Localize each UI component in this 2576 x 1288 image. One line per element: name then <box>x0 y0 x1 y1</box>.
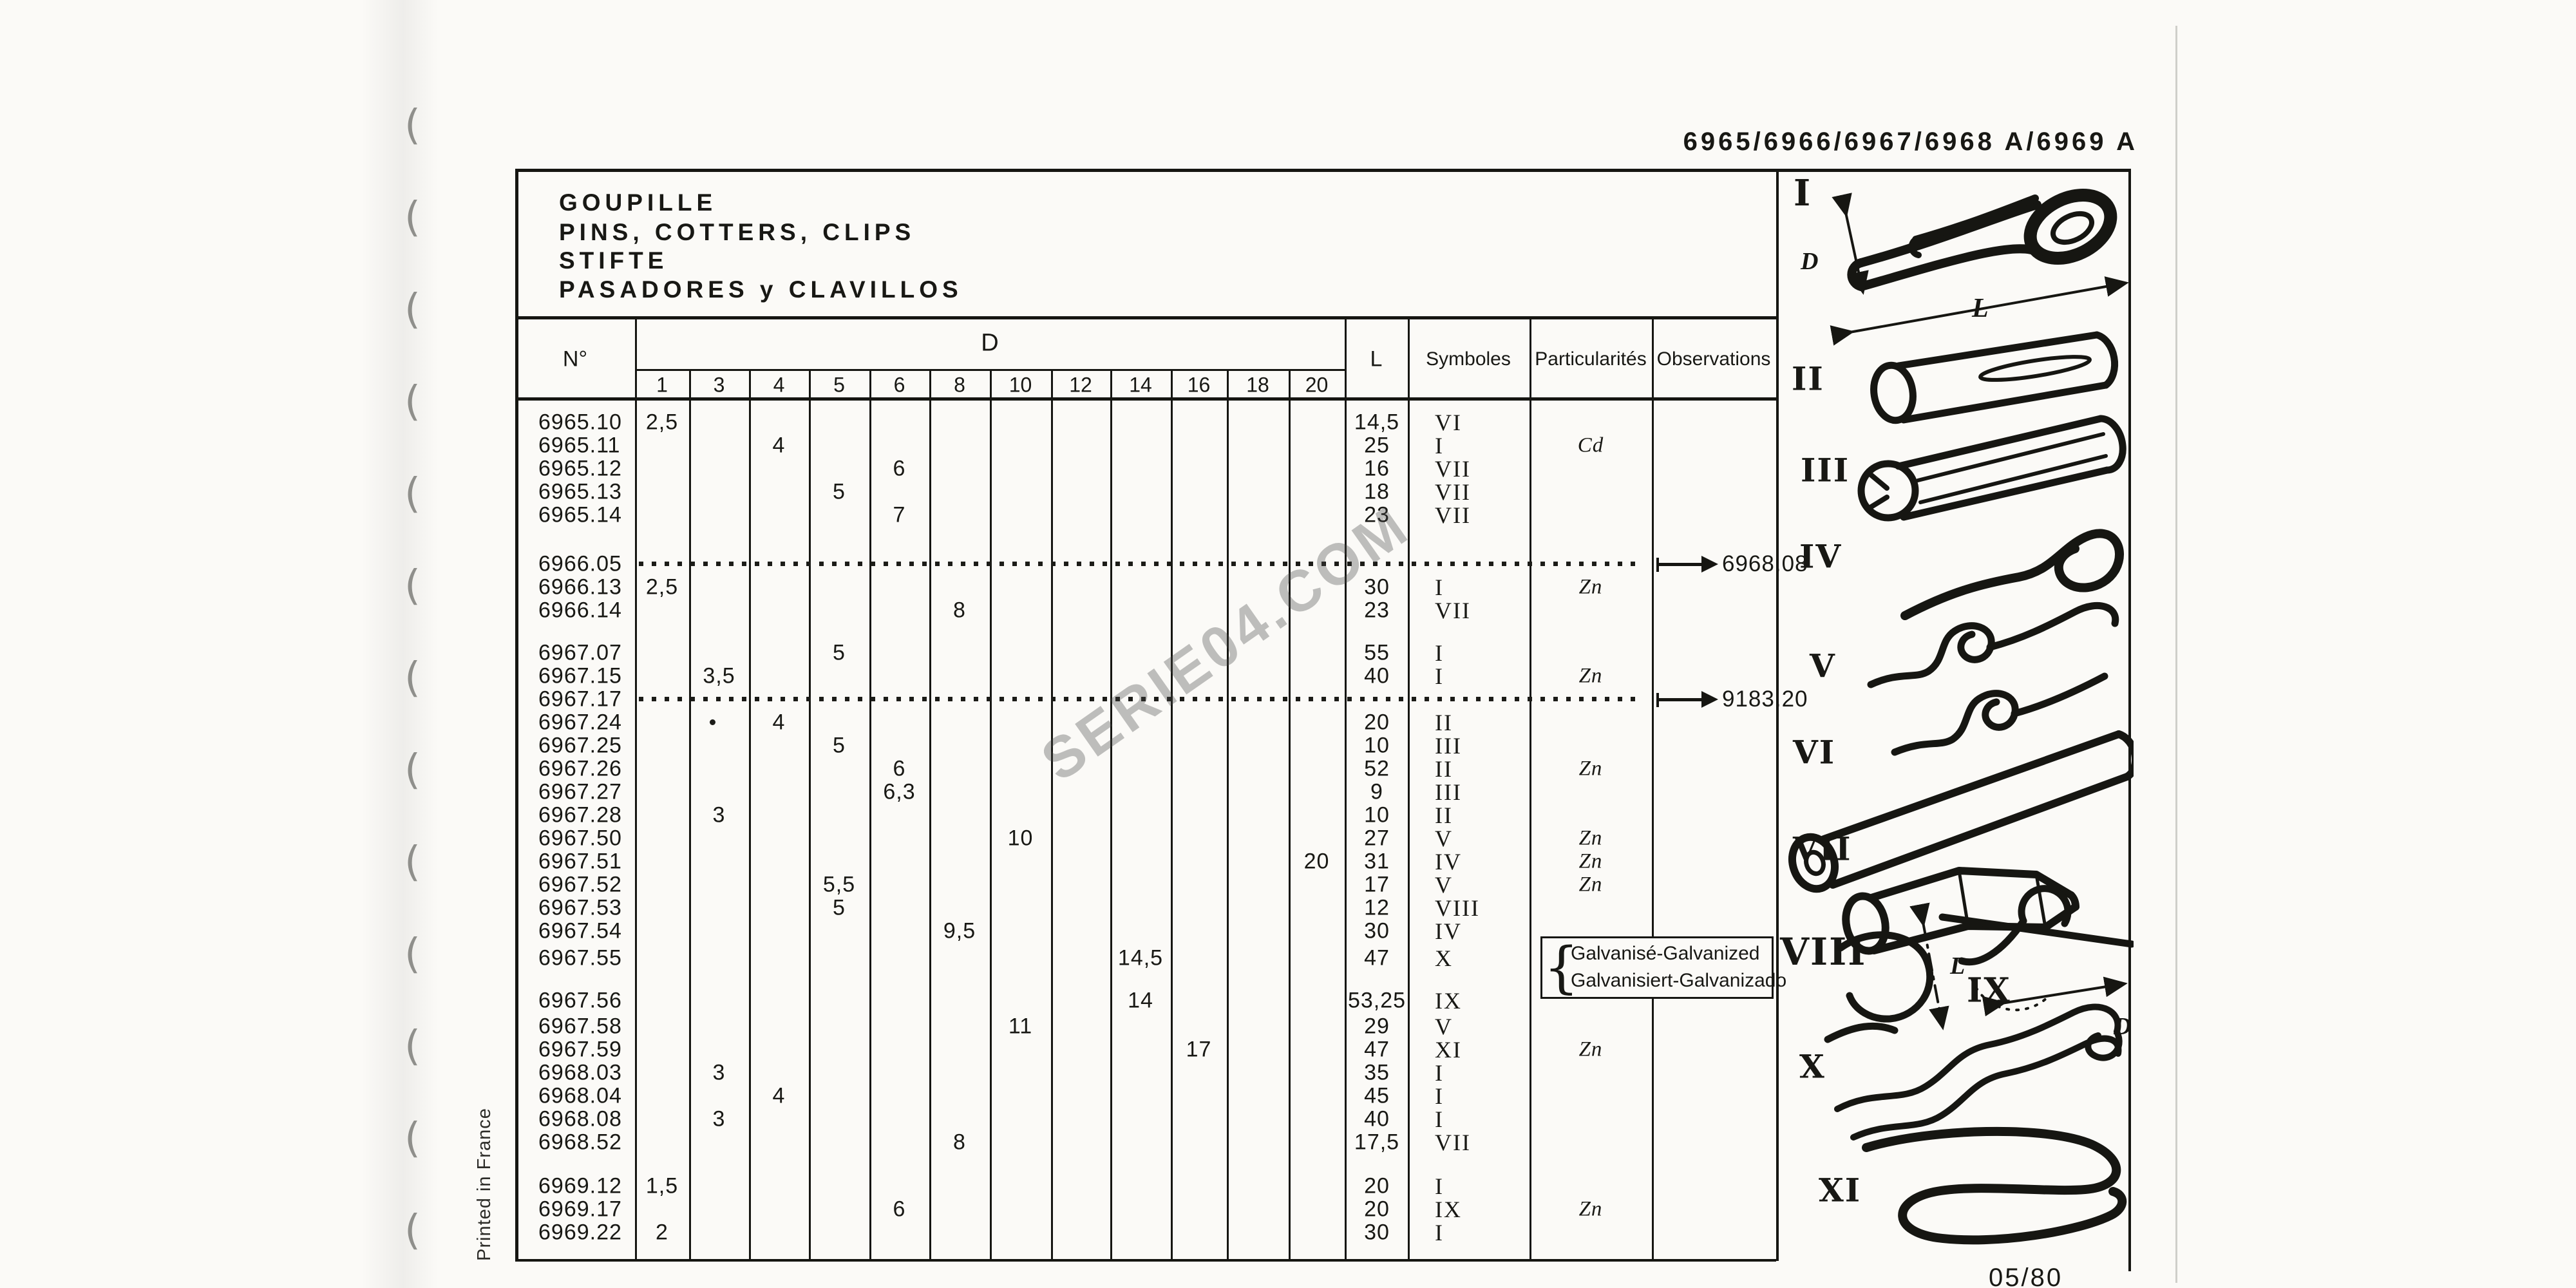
d-value-cell: 17 <box>1154 1037 1244 1062</box>
d-value-cell: 10 <box>976 826 1066 851</box>
grid-hline <box>515 397 1776 401</box>
catalog-page-scan: ((((((((((((( 6965/6966/6967/6968 A/6969… <box>0 0 2576 1288</box>
l-value-cell: 40 <box>1325 1106 1428 1132</box>
figure-III-grooved-pin-drawing <box>1861 419 2123 518</box>
part-number-cell: 6967.50 <box>538 826 622 851</box>
printed-in-france-label: Printed in France <box>474 1108 495 1261</box>
part-number-cell: 6965.13 <box>538 480 622 505</box>
symbole-cell: VII <box>1435 1129 1471 1156</box>
part-number-cell: 6965.12 <box>538 457 622 482</box>
grid-vline <box>1529 317 1531 1261</box>
particularite-cell: Zn <box>1542 827 1639 851</box>
part-number-cell: 6967.52 <box>538 873 622 898</box>
part-number-cell: 6967.27 <box>538 780 622 805</box>
d-value-cell: 11 <box>976 1014 1066 1039</box>
binding-hole-icon: ( <box>404 925 430 983</box>
l-value-cell: 20 <box>1325 710 1428 735</box>
print-date-code: 05/80 <box>1989 1264 2063 1288</box>
d-value-cell: 5,5 <box>794 873 884 898</box>
page-reference-code: 6965/6966/6967/6968 A/6969 A <box>1649 128 2138 156</box>
grid-hline <box>635 369 1345 371</box>
page-right-edge <box>2175 26 2177 1283</box>
part-number-cell: 6967.51 <box>538 849 622 875</box>
d-size-label: 8 <box>954 374 965 397</box>
l-value-cell: 12 <box>1325 896 1428 921</box>
grid-vline <box>990 370 992 1261</box>
symbole-cell: IV <box>1435 918 1462 945</box>
dotted-leader <box>639 562 1639 566</box>
l-value-cell: 55 <box>1325 641 1428 666</box>
particularite-cell: Zn <box>1542 575 1639 599</box>
l-value-cell: 52 <box>1325 757 1428 782</box>
title-english: PINS, COTTERS, CLIPS <box>559 219 915 246</box>
part-number-cell: 6967.28 <box>538 803 622 828</box>
part-number-cell: 6969.22 <box>538 1220 622 1245</box>
l-value-cell: 20 <box>1325 1197 1428 1222</box>
d-value-cell: 3 <box>674 1060 764 1085</box>
d-value-cell: 5 <box>794 480 884 505</box>
col-header-symboles: Symboles <box>1426 348 1511 370</box>
stray-dot-mark <box>710 719 715 725</box>
d-value-cell: 9,5 <box>914 919 1005 944</box>
symbole-cell: X <box>1435 945 1453 972</box>
l-value-cell: 40 <box>1325 664 1428 689</box>
symbole-cell: IX <box>1435 987 1462 1014</box>
d-value-cell: 4 <box>734 433 824 459</box>
d-value-cell: 6 <box>855 1197 945 1222</box>
particularite-cell: Zn <box>1542 873 1639 897</box>
l-value-cell: 14,5 <box>1325 410 1428 435</box>
particularite-cell: Zn <box>1542 850 1639 874</box>
part-number-cell: 6966.14 <box>538 598 622 623</box>
part-number-cell: 6967.59 <box>538 1037 622 1062</box>
d-size-label: 14 <box>1129 374 1152 397</box>
grid-hline <box>515 1259 1776 1262</box>
title-french: GOUPILLE <box>559 189 717 216</box>
figure-V-double-wave-clip-drawing <box>1871 605 2116 752</box>
l-value-cell: 35 <box>1325 1060 1428 1085</box>
part-number-cell: 6967.17 <box>538 687 622 712</box>
figure-XI-large-wire-clip-drawing <box>1866 1132 2122 1240</box>
l-value-cell: 9 <box>1325 780 1428 805</box>
d-size-label: 20 <box>1305 374 1329 397</box>
grid-vline <box>515 169 518 1261</box>
l-value-cell: 53,25 <box>1325 989 1428 1014</box>
d-value-cell: 2 <box>617 1220 707 1245</box>
d-value-cell: 14 <box>1095 989 1186 1014</box>
part-number-cell: 6965.11 <box>538 433 620 459</box>
figure-II-slotted-pin-drawing <box>1870 335 2115 423</box>
pin-type-illustrations: D L <box>1776 169 2134 1270</box>
col-header-particularites: Particularités <box>1535 348 1646 370</box>
binding-hole-icon: ( <box>404 189 430 247</box>
part-number-cell: 6967.55 <box>538 945 622 971</box>
d-value-cell: 3,5 <box>674 664 764 689</box>
arrow-line <box>1656 563 1703 566</box>
galvanized-note-line2: Galvanisiert-Galvanizado <box>1571 970 1786 992</box>
col-header-l: L <box>1370 347 1383 372</box>
binding-hole-icon: ( <box>404 1110 430 1168</box>
l-value-cell: 20 <box>1325 1174 1428 1199</box>
grid-vline <box>1051 370 1053 1261</box>
d-value-cell: 6,3 <box>855 780 945 805</box>
l-value-cell: 30 <box>1325 919 1428 944</box>
binding-hole-icon: ( <box>404 741 430 799</box>
particularite-cell: Zn <box>1542 1198 1639 1222</box>
d-value-cell: 5 <box>794 641 884 666</box>
d-size-label: 18 <box>1246 374 1269 397</box>
col-header-no: N° <box>563 347 587 372</box>
d-size-label: 1 <box>656 374 668 397</box>
l-value-cell: 17 <box>1325 873 1428 898</box>
l-value-cell: 45 <box>1325 1083 1428 1108</box>
figure-VII-barrel-pin-drawing <box>1841 871 2076 954</box>
part-number-cell: 6968.03 <box>538 1060 622 1085</box>
symbole-cell: VII <box>1435 502 1471 529</box>
d-value-cell: 8 <box>914 598 1005 623</box>
galvanized-note: {Galvanisé-GalvanizedGalvanisiert-Galvan… <box>1540 936 1774 999</box>
l-value-cell: 47 <box>1325 1037 1428 1062</box>
l-value-cell: 29 <box>1325 1014 1428 1039</box>
part-number-cell: 6967.26 <box>538 757 622 782</box>
part-number-cell: 6967.25 <box>538 734 622 759</box>
binding-hole-icon: ( <box>404 373 430 431</box>
part-number-cell: 6969.12 <box>538 1174 622 1199</box>
part-number-cell: 6969.17 <box>538 1197 622 1222</box>
part-number-cell: 6965.14 <box>538 503 622 528</box>
part-number-cell: 6967.15 <box>538 664 622 689</box>
part-number-cell: 6967.24 <box>538 710 622 735</box>
d-size-label: 3 <box>714 374 725 397</box>
d-size-label: 10 <box>1009 374 1032 397</box>
l-value-cell: 10 <box>1325 803 1428 828</box>
l-value-cell: 30 <box>1325 1220 1428 1245</box>
title-german: STIFTE <box>559 247 668 274</box>
col-header-d: D <box>981 330 998 357</box>
grid-vline <box>1289 370 1291 1261</box>
d-value-cell: 3 <box>674 1106 764 1132</box>
binding-hole-icon: ( <box>404 557 430 615</box>
dim-label-l: L <box>1971 294 1989 323</box>
d-value-cell: 3 <box>674 803 764 828</box>
binding-hole-icon: ( <box>404 1202 430 1260</box>
particularite-cell: Cd <box>1542 434 1639 458</box>
galvanized-note-line1: Galvanisé-Galvanized <box>1571 943 1759 965</box>
l-value-cell: 17,5 <box>1325 1130 1428 1155</box>
col-header-observations: Observations <box>1657 348 1771 370</box>
binding-hole-icon: ( <box>404 649 430 707</box>
arrow-right-icon <box>1701 556 1718 573</box>
figure-VIII-c-clip-drawing: L <box>1828 922 1965 1039</box>
grid-vline <box>1110 370 1112 1261</box>
d-value-cell: 7 <box>855 503 945 528</box>
particularite-cell: Zn <box>1542 1037 1639 1061</box>
particularite-cell: Zn <box>1542 665 1639 688</box>
l-value-cell: 47 <box>1325 945 1428 971</box>
d-size-label: 5 <box>833 374 845 397</box>
d-value-cell: 2,5 <box>617 410 707 435</box>
d-value-cell: 4 <box>734 1083 824 1108</box>
d-value-cell: 5 <box>794 896 884 921</box>
dim-label-d: D <box>1800 248 1818 275</box>
d-value-cell: 5 <box>794 734 884 759</box>
arrow-line <box>1656 698 1703 701</box>
d-value-cell: 8 <box>914 1130 1005 1155</box>
part-number-cell: 6967.58 <box>538 1014 622 1039</box>
dim-label-l-viii: L <box>1949 952 1965 980</box>
grid-vline <box>1171 370 1173 1261</box>
d-value-cell: 6 <box>855 757 945 782</box>
symbole-cell: I <box>1435 663 1444 690</box>
grid-vline <box>1227 370 1229 1261</box>
d-value-cell: 6 <box>855 457 945 482</box>
part-number-cell: 6967.56 <box>538 989 622 1014</box>
figure-IX-r-clip-drawing: D <box>1942 889 2132 1040</box>
d-value-cell: 2,5 <box>617 574 707 600</box>
symbole-cell: VII <box>1435 597 1471 624</box>
binding-hole-icon: ( <box>404 281 430 339</box>
d-size-label: 4 <box>773 374 785 397</box>
grid-vline <box>635 317 637 1261</box>
d-size-label: 12 <box>1069 374 1092 397</box>
symbole-cell: I <box>1435 1219 1444 1246</box>
l-value-cell: 16 <box>1325 457 1428 482</box>
figure-I-cotter-pin-drawing: D L <box>1800 183 2124 332</box>
grid-vline <box>1652 317 1654 1261</box>
binding-hole-icon: ( <box>404 465 430 523</box>
part-number-cell: 6968.52 <box>538 1130 622 1155</box>
part-number-cell: 6965.10 <box>538 410 622 435</box>
particularite-cell: Zn <box>1542 757 1639 781</box>
binding-hole-icon: ( <box>404 1018 430 1075</box>
part-number-cell: 6966.05 <box>538 551 622 576</box>
d-size-label: 16 <box>1188 374 1211 397</box>
d-size-label: 6 <box>894 374 905 397</box>
d-value-cell: 14,5 <box>1095 945 1186 971</box>
part-number-cell: 6967.53 <box>538 896 622 921</box>
part-number-cell: 6968.04 <box>538 1083 622 1108</box>
grid-hline <box>515 316 1776 319</box>
d-value-cell: 1,5 <box>617 1174 707 1199</box>
title-spanish: PASADORES y CLAVILLOS <box>559 276 963 303</box>
l-value-cell: 10 <box>1325 734 1428 759</box>
part-number-cell: 6967.54 <box>538 919 622 944</box>
arrow-right-icon <box>1701 691 1718 708</box>
binding-hole-icon: ( <box>404 833 430 891</box>
l-value-cell: 31 <box>1325 849 1428 875</box>
part-number-cell: 6967.07 <box>538 641 622 666</box>
binding-hole-icon: ( <box>404 97 430 155</box>
part-number-cell: 6968.08 <box>538 1106 622 1132</box>
l-value-cell: 25 <box>1325 433 1428 459</box>
l-value-cell: 27 <box>1325 826 1428 851</box>
part-number-cell: 6966.13 <box>538 574 622 600</box>
d-value-cell: 4 <box>734 710 824 735</box>
